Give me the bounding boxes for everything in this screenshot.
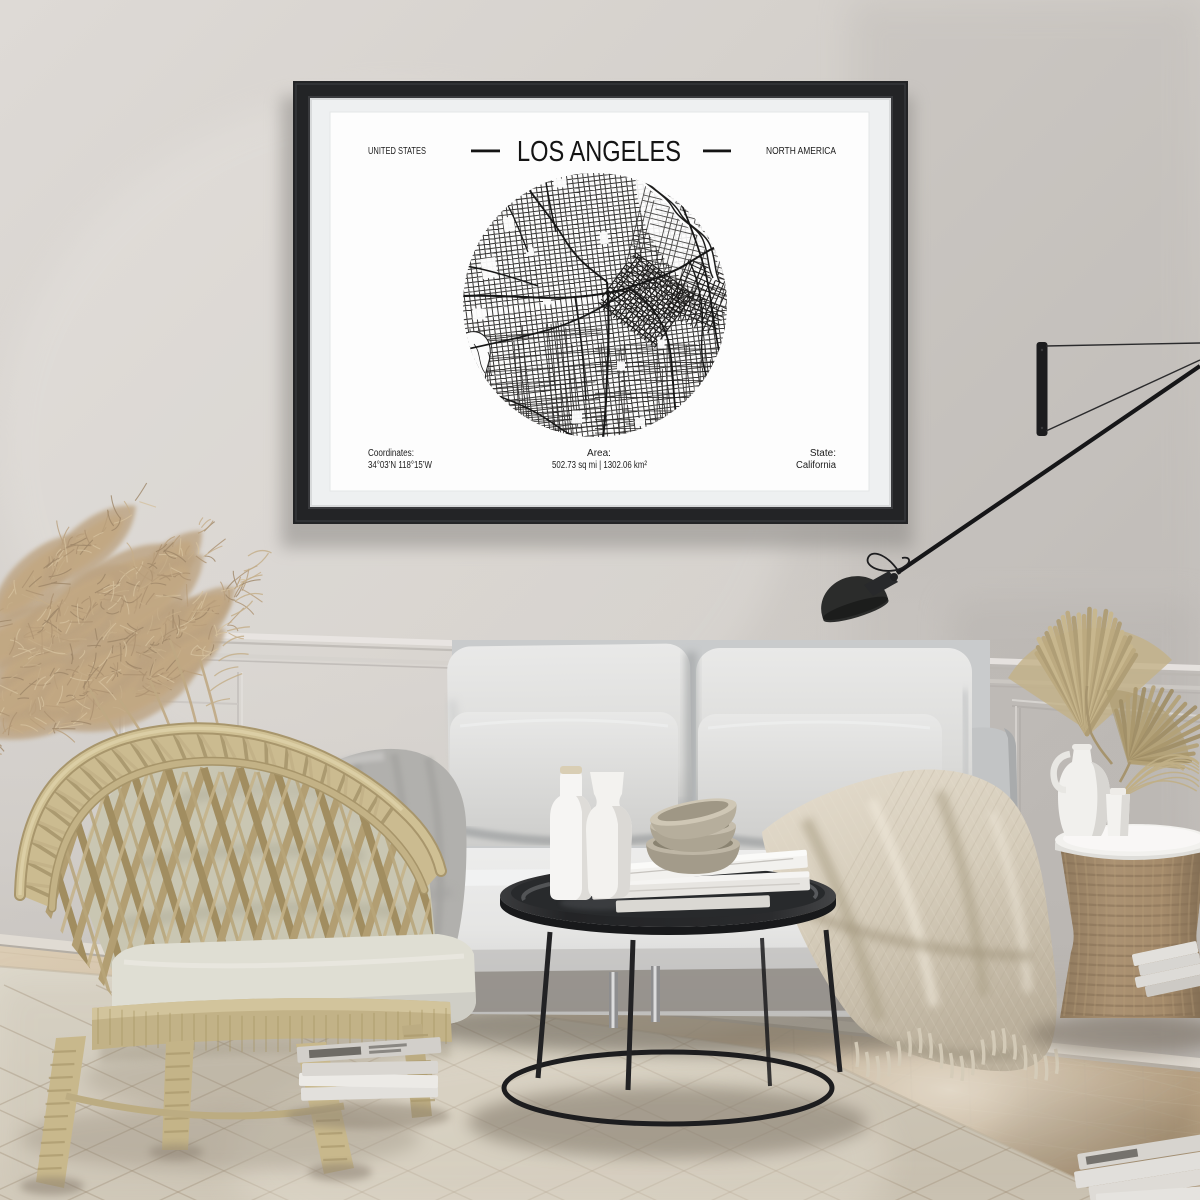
svg-text:LOS ANGELES: LOS ANGELES [517, 136, 681, 168]
svg-text:California: California [796, 460, 836, 471]
svg-text:Area:: Area: [587, 448, 611, 459]
svg-text:State:: State: [810, 448, 836, 459]
svg-text:NORTH AMERICA: NORTH AMERICA [766, 146, 836, 157]
svg-text:Coordinates:: Coordinates: [368, 448, 414, 459]
svg-text:UNITED STATES: UNITED STATES [368, 146, 426, 157]
svg-text:34°03’N 118°15’W: 34°03’N 118°15’W [368, 460, 432, 471]
svg-text:502.73 sq mi | 1302.06 km²: 502.73 sq mi | 1302.06 km² [552, 460, 648, 471]
